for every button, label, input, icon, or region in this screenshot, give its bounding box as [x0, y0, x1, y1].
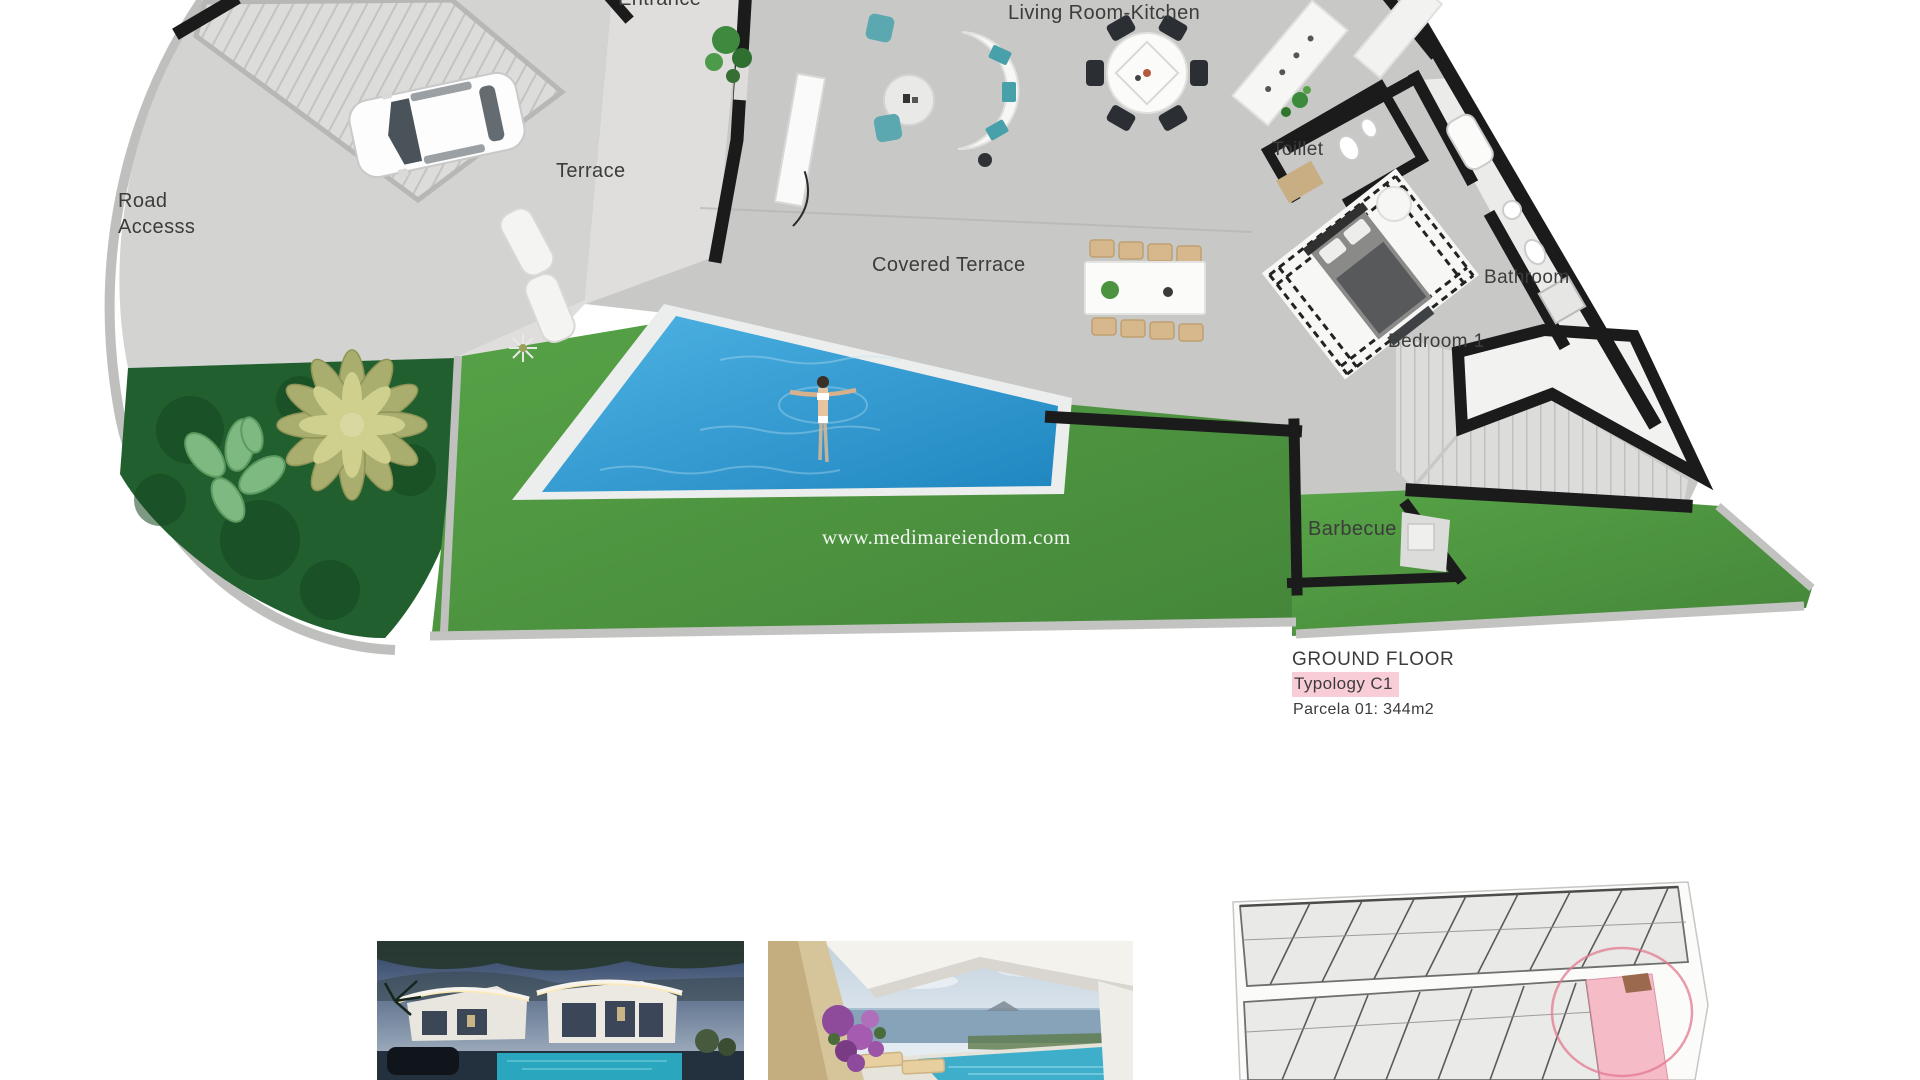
caption-typology: Typology C1	[1292, 672, 1399, 697]
bbq-counter	[1400, 512, 1450, 572]
photo-terrace-view	[768, 941, 1133, 1080]
caption-parcela: Parcela 01: 344m2	[1293, 700, 1434, 721]
watermark: www.medimareiendom.com	[822, 524, 1071, 551]
wall-bbq-left	[1294, 424, 1297, 590]
label-covered-terrace: Covered Terrace	[872, 252, 1025, 278]
siteplan-highlight-roof	[1622, 973, 1652, 993]
label-bedroom-1: Bedroom 1	[1388, 330, 1485, 355]
photo-villa-exterior	[377, 941, 744, 1080]
label-road-access: Road Accesss	[118, 188, 195, 240]
label-road-access-line1: Road	[118, 188, 195, 214]
label-toilet: Toillet	[1272, 138, 1323, 163]
site-plan	[1233, 882, 1708, 1080]
label-terrace: Terrace	[556, 158, 626, 184]
bedside-table	[1377, 187, 1411, 221]
label-bathroom: Bathroom	[1484, 266, 1570, 291]
label-entrance: Entrance	[618, 0, 701, 12]
terrace-plant	[509, 334, 537, 362]
brochure-page: Road Accesss Terrace Entrance Living Roo…	[0, 0, 1920, 1080]
caption-ground-floor: GROUND FLOOR	[1292, 648, 1454, 673]
label-living-room-kitchen: Living Room-Kitchen	[1008, 0, 1200, 26]
label-barbecue: Barbecue	[1308, 516, 1397, 542]
label-road-access-line2: Accesss	[118, 214, 195, 240]
wall-bbq-bottom	[1292, 577, 1455, 583]
